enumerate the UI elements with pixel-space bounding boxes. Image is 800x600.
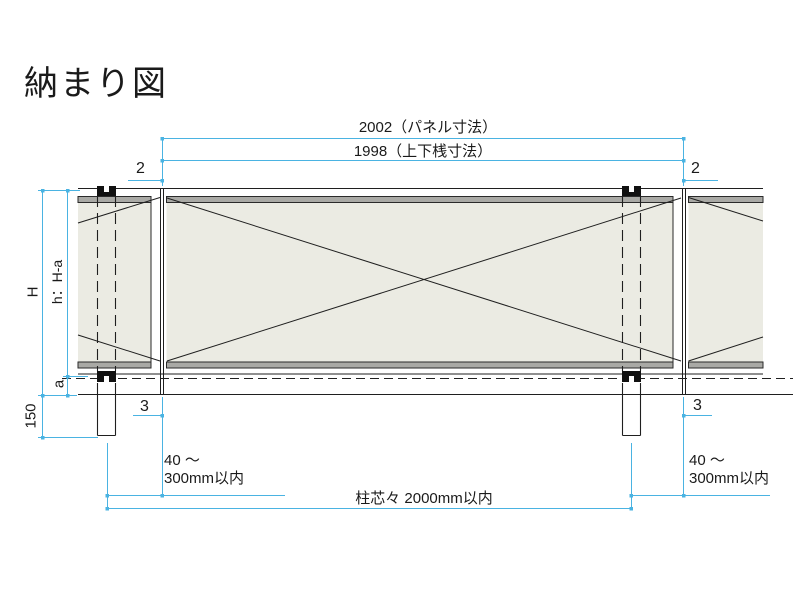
dim-bottom-gap-left: 3 [140,398,149,416]
detail-drawing-page: 納まり図 2002（パネル寸法） 1998（上下桟寸法） 2 2 3 3 H h… [0,0,800,600]
bottom-rail-band [78,362,763,368]
dim-post-offset-left-line1: 40 ～ [164,452,200,469]
page-title: 納まり図 [24,56,168,105]
dim-post-offset-right-line2: 300mm以内 [689,470,769,487]
top-rail-band [78,197,763,203]
dim-bottom-gap-right: 3 [693,397,702,415]
dim-post-offset-left-line2: 300mm以内 [164,470,244,487]
dim-post-offset-right-line1: 40 ～ [689,452,725,469]
dim-top-gap-right: 2 [691,160,700,178]
dim-panel-height-label: h：H-a [47,260,67,304]
dim-ground-clearance-label: a [51,380,68,388]
dim-post-offset-right: 40 ～ 300mm以内 [689,452,769,488]
dim-panel-width-label: 2002（パネル寸法） [278,116,578,137]
dim-embedment-label: 150 [23,403,40,428]
dim-post-spacing-label: 柱芯々 2000mm以内 [304,487,544,508]
dim-post-offset-left: 40 ～ 300mm以内 [164,452,244,488]
panel-fill [78,203,763,363]
dim-overall-height-label: H [25,287,42,298]
dim-rail-width-label: 1998（上下桟寸法） [273,140,573,161]
dim-top-gap-left: 2 [136,160,145,178]
